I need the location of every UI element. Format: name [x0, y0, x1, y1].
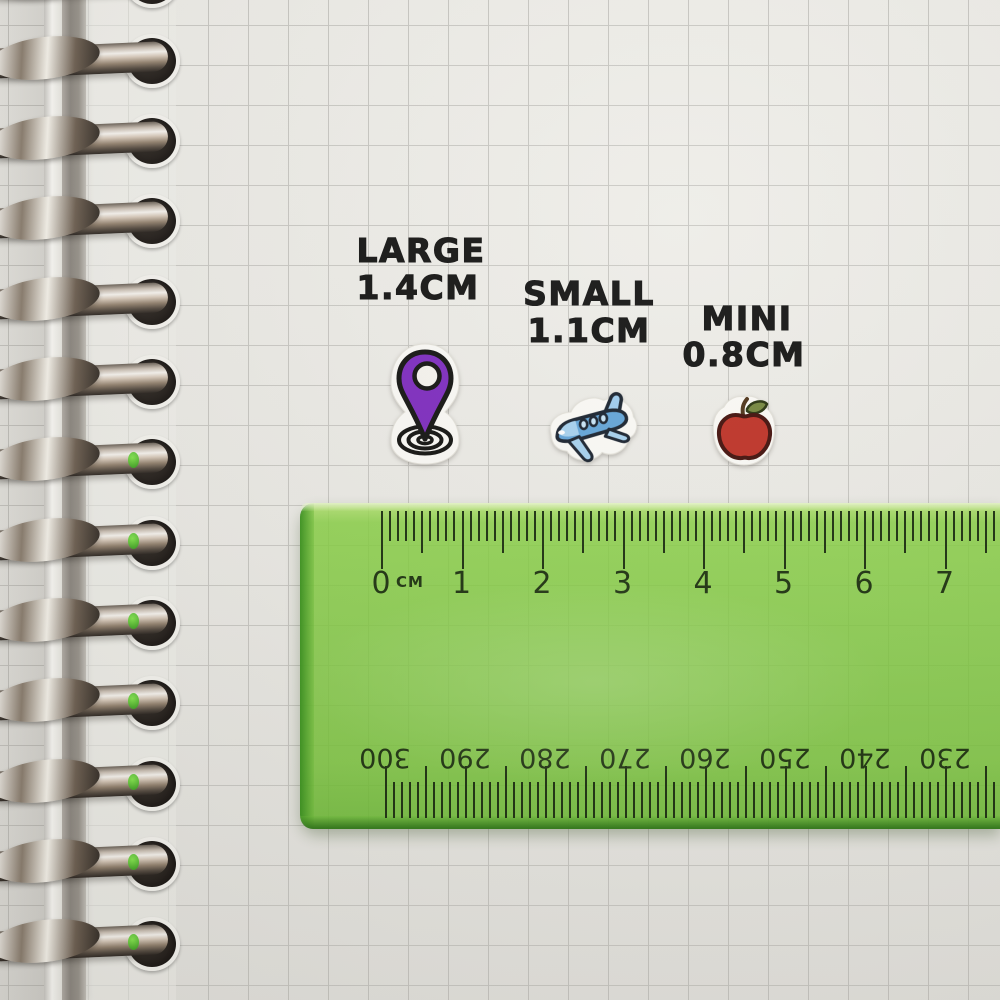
- mm-tick: [825, 766, 827, 818]
- mm-tick: [785, 766, 787, 818]
- ruler-sheen: [300, 503, 1000, 829]
- mm-tick: [705, 766, 707, 818]
- mm-tick: [665, 766, 667, 818]
- mm-tick: [865, 766, 867, 818]
- ruler-number: 6: [842, 569, 886, 599]
- spiral-ring-bend: [0, 351, 102, 406]
- ruler-number: 2: [520, 569, 564, 599]
- mm-tick: [673, 782, 675, 818]
- cm-tick: [767, 511, 769, 541]
- cm-tick: [647, 511, 649, 541]
- cm-tick: [429, 511, 431, 541]
- cm-tick: [381, 511, 383, 569]
- ruler-reflection-dot: [128, 533, 139, 549]
- mm-tick: [801, 782, 803, 818]
- mm-tick: [961, 782, 963, 818]
- cm-tick: [582, 511, 584, 553]
- mm-tick: [913, 782, 915, 818]
- mm-tick: [657, 782, 659, 818]
- cm-tick: [389, 511, 391, 541]
- ruler-reflection-dot: [128, 854, 139, 870]
- mm-tick: [697, 782, 699, 818]
- mm-tick: [585, 766, 587, 818]
- mm-tick: [497, 782, 499, 818]
- cm-tick: [928, 511, 930, 541]
- ruler-reflection-dot: [128, 452, 139, 468]
- spiral-ring-unit: [0, 740, 200, 830]
- cm-tick: [590, 511, 592, 541]
- cm-tick: [743, 511, 745, 553]
- mini-label: MINI: [701, 302, 792, 335]
- airplane-icon: [541, 388, 641, 471]
- mm-tick: [897, 782, 899, 818]
- cm-tick: [711, 511, 713, 541]
- mm-tick: [873, 782, 875, 818]
- large-label: LARGE: [356, 234, 485, 267]
- ruler-number: 3: [601, 569, 645, 599]
- cm-tick: [679, 511, 681, 541]
- cm-tick: [920, 511, 922, 541]
- cm-tick: [478, 511, 480, 541]
- mm-tick: [489, 782, 491, 818]
- mm-tick: [977, 782, 979, 818]
- mm-tick: [993, 782, 995, 818]
- mm-tick: [433, 782, 435, 818]
- mm-tick: [409, 782, 411, 818]
- apple-sticker: [711, 393, 777, 475]
- mm-tick: [937, 782, 939, 818]
- cm-tick: [663, 511, 665, 553]
- cm-tick: [904, 511, 906, 553]
- spiral-ring-bend: [0, 753, 102, 808]
- spiral-ring-unit: [0, 338, 200, 428]
- ruler-reflection-dot: [128, 693, 139, 709]
- spiral-ring-unit: [0, 17, 200, 107]
- spiral-ring-bend: [0, 592, 102, 647]
- cm-tick: [912, 511, 914, 541]
- cm-tick: [518, 511, 520, 541]
- cm-tick: [784, 511, 786, 569]
- cm-tick: [470, 511, 472, 541]
- cm-tick: [687, 511, 689, 541]
- location-pin-sticker: [388, 342, 462, 470]
- cm-tick: [542, 511, 544, 569]
- cm-tick: [510, 511, 512, 541]
- cm-tick: [840, 511, 842, 541]
- mm-tick: [529, 782, 531, 818]
- punch-hole: [124, 0, 180, 8]
- mm-tick: [625, 766, 627, 818]
- cm-tick: [695, 511, 697, 541]
- cm-tick: [832, 511, 834, 541]
- mm-tick: [889, 782, 891, 818]
- cm-tick: [462, 511, 464, 569]
- ruler-reflection-dot: [128, 774, 139, 790]
- spiral-ring-bend: [0, 833, 102, 888]
- cm-tick: [405, 511, 407, 541]
- mm-tick: [681, 782, 683, 818]
- cm-tick: [445, 511, 447, 541]
- cm-tick: [977, 511, 979, 541]
- cm-tick: [534, 511, 536, 541]
- mm-tick: [481, 782, 483, 818]
- mm-tick: [393, 782, 395, 818]
- mm-tick: [513, 782, 515, 818]
- mm-tick: [689, 782, 691, 818]
- cm-tick: [864, 511, 866, 569]
- mm-tick: [569, 782, 571, 818]
- cm-tick: [719, 511, 721, 541]
- spiral-ring-bend: [0, 913, 102, 968]
- spiral-ring-unit: [0, 659, 200, 749]
- ruler-number-inverted: 250: [753, 744, 817, 771]
- cm-tick: [413, 511, 415, 541]
- cm-tick: [558, 511, 560, 541]
- cm-tick: [985, 511, 987, 553]
- cm-tick: [848, 511, 850, 541]
- cm-tick: [614, 511, 616, 541]
- mm-tick: [737, 782, 739, 818]
- cm-tick: [494, 511, 496, 541]
- ruler-number-inverted: 280: [513, 744, 577, 771]
- spiral-ring-bend: [0, 512, 102, 567]
- mm-tick: [905, 766, 907, 818]
- spiral-ring-unit: [0, 97, 200, 187]
- mm-tick: [521, 782, 523, 818]
- cm-tick: [502, 511, 504, 553]
- mm-tick: [833, 782, 835, 818]
- notebook-photo: LARGE 1.4CM SMALL 1.1CM MINI 0.8CM: [0, 0, 1000, 1000]
- spiral-ring-unit: [0, 900, 200, 990]
- ruler-reflection-dot: [128, 934, 139, 950]
- spiral-ring-bend: [0, 190, 102, 245]
- cm-tick: [486, 511, 488, 541]
- cm-tick: [775, 511, 777, 541]
- cm-tick: [936, 511, 938, 541]
- ruler-number: 4: [681, 569, 725, 599]
- mm-tick: [769, 782, 771, 818]
- mm-tick: [633, 782, 635, 818]
- airplane-sticker: [541, 388, 641, 475]
- mm-tick: [473, 782, 475, 818]
- cm-tick: [437, 511, 439, 541]
- cm-tick: [856, 511, 858, 541]
- mm-tick: [857, 782, 859, 818]
- spiral-ring-bend: [0, 110, 102, 165]
- mm-tick: [609, 782, 611, 818]
- mm-tick: [969, 782, 971, 818]
- mini-size-label: 0.8CM: [682, 338, 805, 371]
- cm-tick: [824, 511, 826, 553]
- cm-tick: [727, 511, 729, 541]
- mm-tick: [745, 766, 747, 818]
- mm-tick: [649, 782, 651, 818]
- cm-tick: [759, 511, 761, 541]
- ruler-number: 7: [923, 569, 967, 599]
- ruler-number-inverted: 300: [353, 744, 417, 771]
- apple-icon: [711, 393, 777, 471]
- cm-unit-label: CM: [396, 573, 424, 591]
- ruler-left-edge: [300, 503, 314, 829]
- cm-tick: [453, 511, 455, 541]
- mm-tick: [457, 782, 459, 818]
- mm-tick: [753, 782, 755, 818]
- green-ruler: 01234567 300290280270260250240230 CM: [300, 503, 1000, 829]
- mm-tick: [553, 782, 555, 818]
- ruler-number-inverted: 260: [673, 744, 737, 771]
- mm-tick: [617, 782, 619, 818]
- cm-tick: [945, 511, 947, 569]
- cm-tick: [751, 511, 753, 541]
- cm-tick: [598, 511, 600, 541]
- mm-tick: [721, 782, 723, 818]
- cm-tick: [993, 511, 995, 541]
- spiral-ring-unit: [0, 177, 200, 267]
- mm-tick: [545, 766, 547, 818]
- cm-tick: [808, 511, 810, 541]
- mm-tick: [601, 782, 603, 818]
- cm-tick: [816, 511, 818, 541]
- cm-tick: [953, 511, 955, 541]
- spiral-ring-unit: [0, 258, 200, 348]
- cm-tick: [639, 511, 641, 541]
- mm-tick: [817, 782, 819, 818]
- ruler-number-inverted: 270: [593, 744, 657, 771]
- cm-tick: [421, 511, 423, 553]
- cm-tick: [526, 511, 528, 541]
- mm-tick: [505, 766, 507, 818]
- mm-tick: [537, 782, 539, 818]
- cm-tick: [397, 511, 399, 541]
- mm-tick: [881, 782, 883, 818]
- cm-tick: [550, 511, 552, 541]
- ruler-reflection-dot: [128, 613, 139, 629]
- cm-tick: [872, 511, 874, 541]
- spiral-ring-bend: [0, 30, 102, 85]
- small-size-label: 1.1CM: [527, 314, 650, 347]
- ruler-number-inverted: 240: [833, 744, 897, 771]
- spiral-ring-bend: [0, 0, 102, 6]
- mm-tick: [425, 766, 427, 818]
- mm-tick: [777, 782, 779, 818]
- mm-tick: [593, 782, 595, 818]
- spiral-ring-unit: [0, 499, 200, 589]
- mm-tick: [793, 782, 795, 818]
- cm-tick: [735, 511, 737, 541]
- cm-tick: [961, 511, 963, 541]
- mm-tick: [929, 782, 931, 818]
- mm-tick: [953, 782, 955, 818]
- mm-tick: [729, 782, 731, 818]
- mm-tick: [761, 782, 763, 818]
- cm-tick: [703, 511, 705, 569]
- ruler-number: 5: [762, 569, 806, 599]
- ruler-number: 1: [440, 569, 484, 599]
- mm-tick: [561, 782, 563, 818]
- cm-tick: [896, 511, 898, 541]
- cm-tick: [631, 511, 633, 541]
- mm-tick: [577, 782, 579, 818]
- mm-tick: [921, 782, 923, 818]
- cm-tick: [574, 511, 576, 541]
- cm-tick: [888, 511, 890, 541]
- mm-tick: [449, 782, 451, 818]
- cm-tick: [969, 511, 971, 541]
- ruler-number-inverted: 230: [913, 744, 977, 771]
- ruler-top-edge: [300, 503, 1000, 511]
- spiral-ring-unit: [0, 820, 200, 910]
- cm-tick: [606, 511, 608, 541]
- cm-tick: [671, 511, 673, 541]
- mm-tick: [641, 782, 643, 818]
- cm-tick: [623, 511, 625, 569]
- mm-tick: [841, 782, 843, 818]
- large-size-label: 1.4CM: [356, 271, 479, 304]
- cm-tick: [800, 511, 802, 541]
- cm-tick: [655, 511, 657, 541]
- spiral-ring-bend: [0, 271, 102, 326]
- cm-tick: [566, 511, 568, 541]
- spiral-ring-unit: [0, 579, 200, 669]
- mm-tick: [945, 766, 947, 818]
- mm-tick: [849, 782, 851, 818]
- ruler-number-inverted: 290: [433, 744, 497, 771]
- mm-tick: [465, 766, 467, 818]
- mm-tick: [809, 782, 811, 818]
- spiral-ring-bend: [0, 431, 102, 486]
- location-pin-icon: [388, 342, 462, 466]
- mm-tick: [401, 782, 403, 818]
- mm-tick: [441, 782, 443, 818]
- small-label: SMALL: [523, 277, 655, 310]
- mm-tick: [713, 782, 715, 818]
- cm-tick: [880, 511, 882, 541]
- mm-tick: [385, 766, 387, 818]
- spiral-ring-unit: [0, 418, 200, 508]
- cm-tick: [792, 511, 794, 541]
- mm-tick: [985, 766, 987, 818]
- mm-tick: [417, 782, 419, 818]
- spiral-ring-bend: [0, 672, 102, 727]
